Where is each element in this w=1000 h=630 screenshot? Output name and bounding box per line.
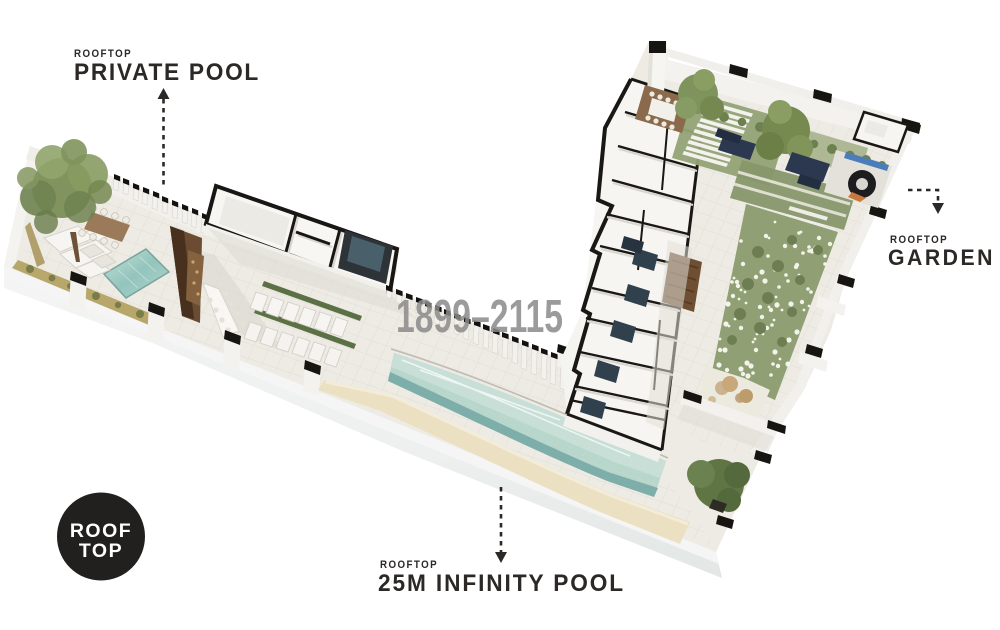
svg-text:TOP: TOP [79,540,123,562]
svg-text:25M INFINITY POOL: 25M INFINITY POOL [378,570,625,597]
svg-text:PRIVATE POOL: PRIVATE POOL [74,59,260,86]
svg-text:GARDEN: GARDEN [888,245,995,270]
svg-text:ROOF: ROOF [70,520,132,542]
